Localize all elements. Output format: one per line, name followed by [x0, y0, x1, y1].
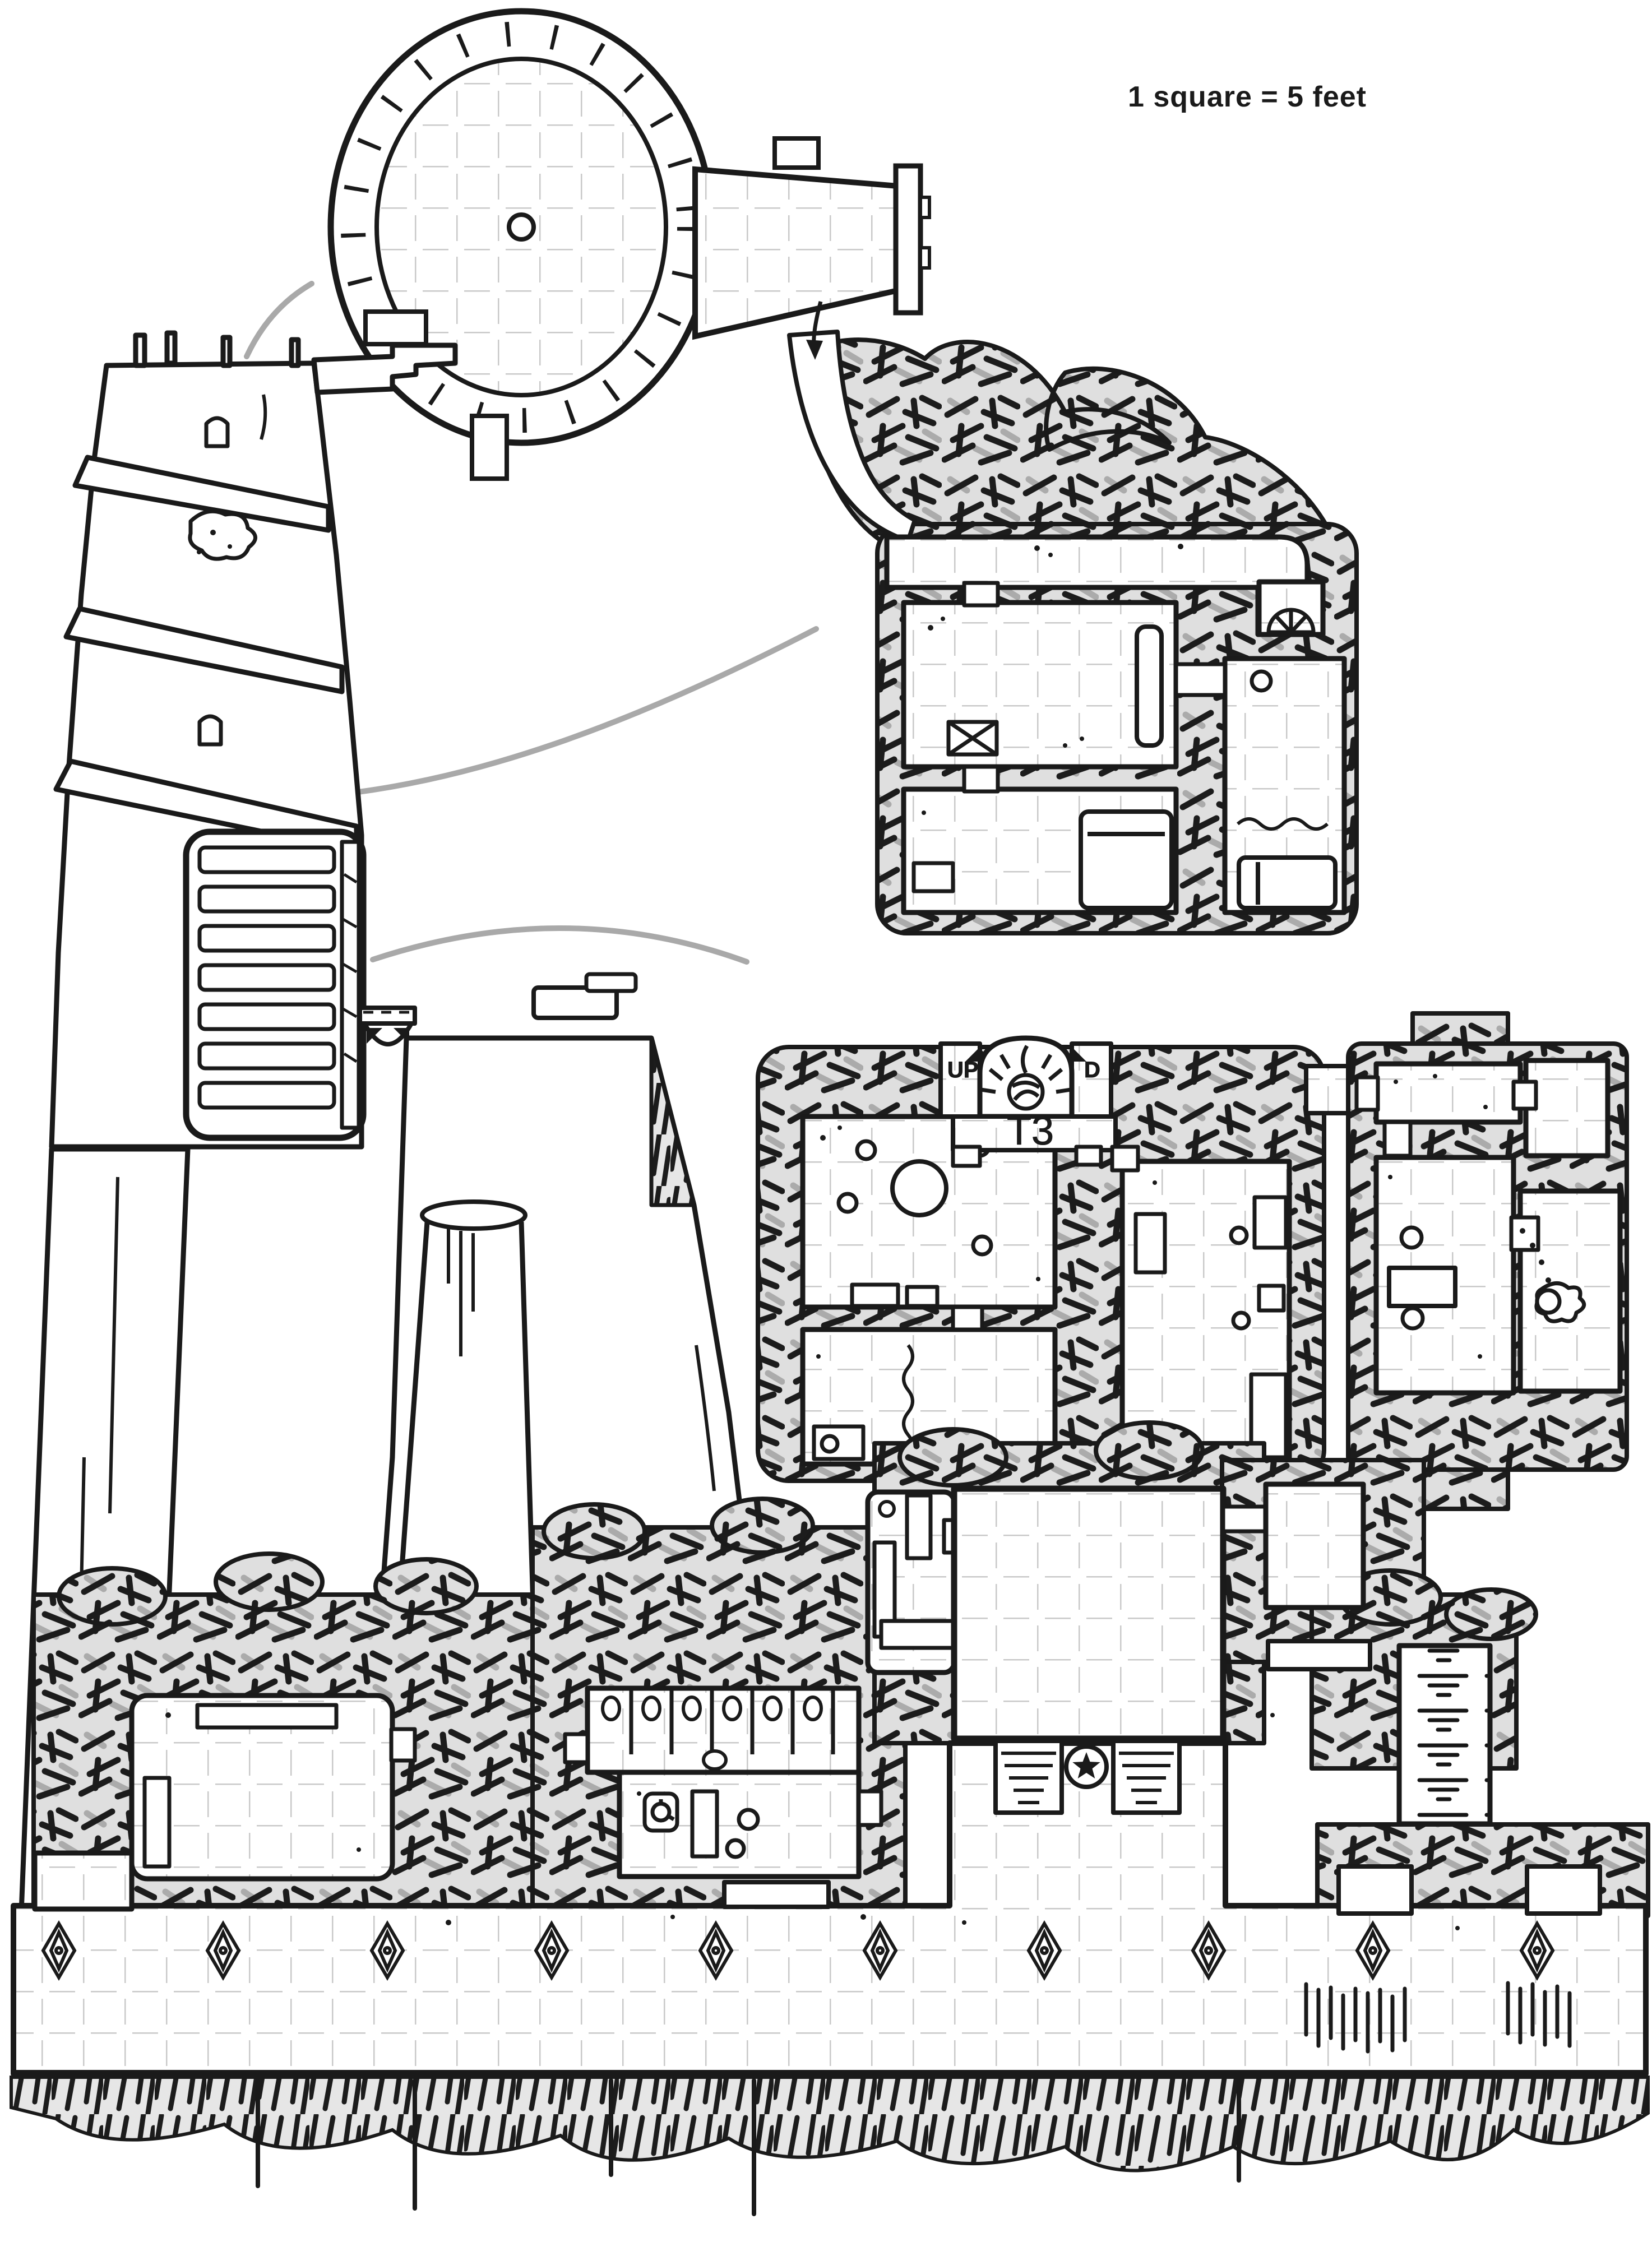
star-emblem-icon: [1066, 1747, 1107, 1787]
stool-icon: [857, 1141, 875, 1159]
bed-icon: [1239, 858, 1335, 908]
great-hall: [954, 1489, 1223, 1739]
label-up: UP: [947, 1058, 979, 1082]
table: [1389, 1268, 1455, 1306]
stool-icon: [739, 1810, 758, 1829]
stool-icon: [1233, 1313, 1249, 1328]
stairs-down-icon: [996, 1741, 1062, 1813]
round-table-icon: [892, 1161, 946, 1215]
roof-hatch-left: [365, 312, 426, 344]
step-landing: [1527, 1866, 1600, 1914]
tower-stair-grate: [186, 832, 363, 1138]
door: [859, 1791, 881, 1825]
door: [1176, 664, 1225, 695]
table: [197, 1705, 336, 1727]
door: [953, 1147, 980, 1166]
stool-icon: [1252, 671, 1271, 691]
label-down: D: [1084, 1058, 1100, 1082]
ground-level-complex: [13, 1423, 1648, 2074]
stool-icon: [1401, 1227, 1422, 1248]
stool-icon: [727, 1840, 744, 1857]
stool-icon: [1403, 1308, 1423, 1328]
bench: [1268, 1641, 1370, 1669]
water-pool: [1399, 1646, 1490, 1824]
door: [1514, 1082, 1536, 1109]
room: [1266, 1484, 1363, 1608]
door: [964, 767, 998, 791]
upper-level-dungeon: [789, 302, 1357, 933]
bench: [724, 1882, 829, 1907]
roof-walkway: [695, 169, 898, 336]
chute-rim: [422, 1202, 525, 1229]
well-crank-icon: [645, 1794, 677, 1831]
door: [565, 1734, 587, 1762]
bench: [1137, 627, 1162, 745]
bed-icon: [1081, 812, 1172, 908]
arched-window-icon: [200, 716, 221, 744]
step-landing: [1339, 1866, 1412, 1914]
door: [1385, 1122, 1410, 1156]
crate-icon: [948, 722, 997, 754]
shelf: [145, 1778, 169, 1866]
furnace: [814, 1426, 863, 1459]
step-landing: [35, 1853, 132, 1909]
door: [1223, 1507, 1266, 1531]
cliff-edge: [11, 2074, 1648, 2214]
stool-icon: [839, 1194, 857, 1212]
door: [953, 1307, 982, 1330]
stool-icon: [973, 1236, 991, 1254]
roof-center-post: [509, 215, 534, 239]
door: [391, 1729, 415, 1761]
room: [1526, 1060, 1608, 1156]
door: [1112, 1147, 1138, 1170]
east-annex-dungeon: [1348, 1013, 1627, 1509]
shelf: [1259, 1286, 1284, 1310]
shelf: [1255, 1197, 1286, 1248]
arched-window-icon: [206, 418, 228, 446]
stairs-down-icon: [1113, 1741, 1179, 1813]
door: [964, 583, 998, 605]
label-t3: T3: [1007, 1109, 1054, 1154]
door: [1076, 1147, 1101, 1165]
dungeon-map: 1 square = 5 feet: [0, 0, 1652, 2242]
cabinet: [692, 1791, 717, 1856]
well-room: [619, 1751, 881, 1877]
door: [1357, 1077, 1378, 1110]
t3-level-dungeon: UP D T3: [758, 1038, 1380, 1481]
scale-note: 1 square = 5 feet: [1128, 81, 1367, 113]
stool-icon: [1231, 1227, 1247, 1243]
roof-hatch-bottom: [472, 416, 507, 479]
corridor-room: [1376, 1064, 1520, 1122]
map-page: 1 square = 5 feet: [0, 0, 1652, 2242]
annex-room: [868, 1492, 964, 1673]
